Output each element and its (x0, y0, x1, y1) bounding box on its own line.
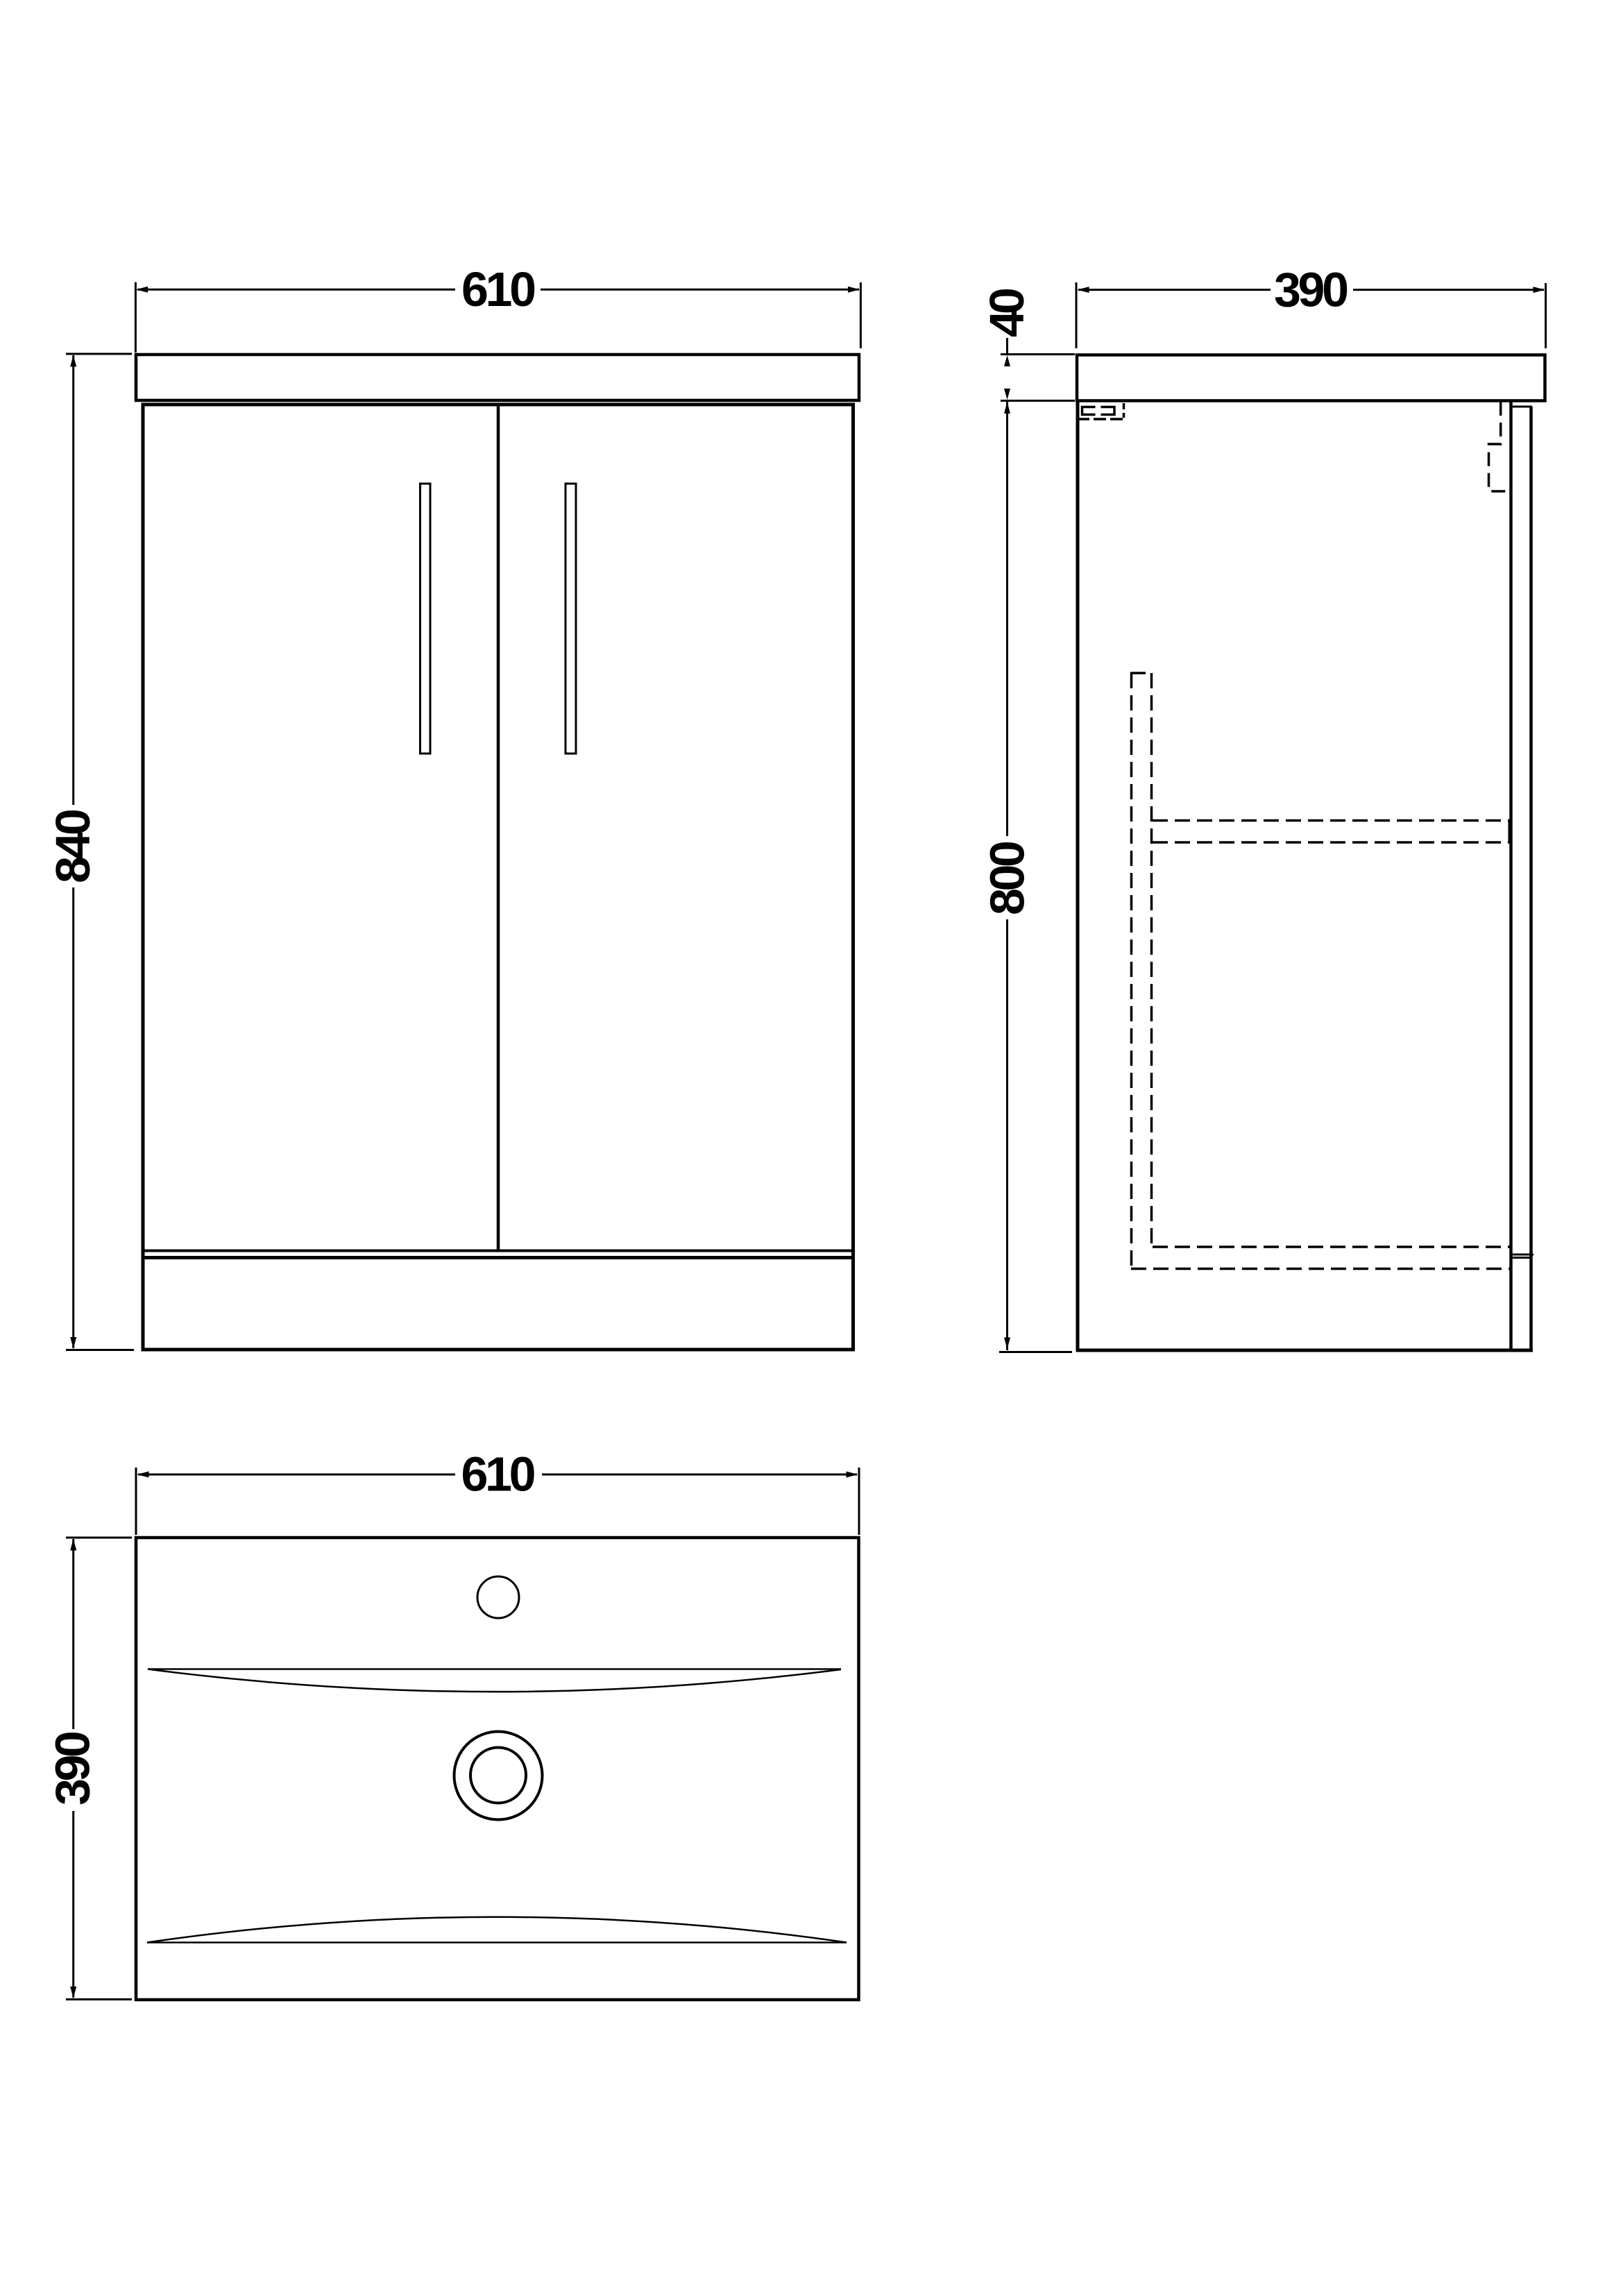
svg-text:610: 610 (461, 1447, 536, 1502)
svg-text:610: 610 (461, 262, 536, 316)
svg-text:390: 390 (46, 1730, 100, 1805)
svg-text:40: 40 (980, 287, 1034, 337)
svg-text:800: 800 (980, 840, 1034, 915)
svg-text:840: 840 (46, 808, 100, 883)
svg-text:390: 390 (1274, 263, 1349, 317)
